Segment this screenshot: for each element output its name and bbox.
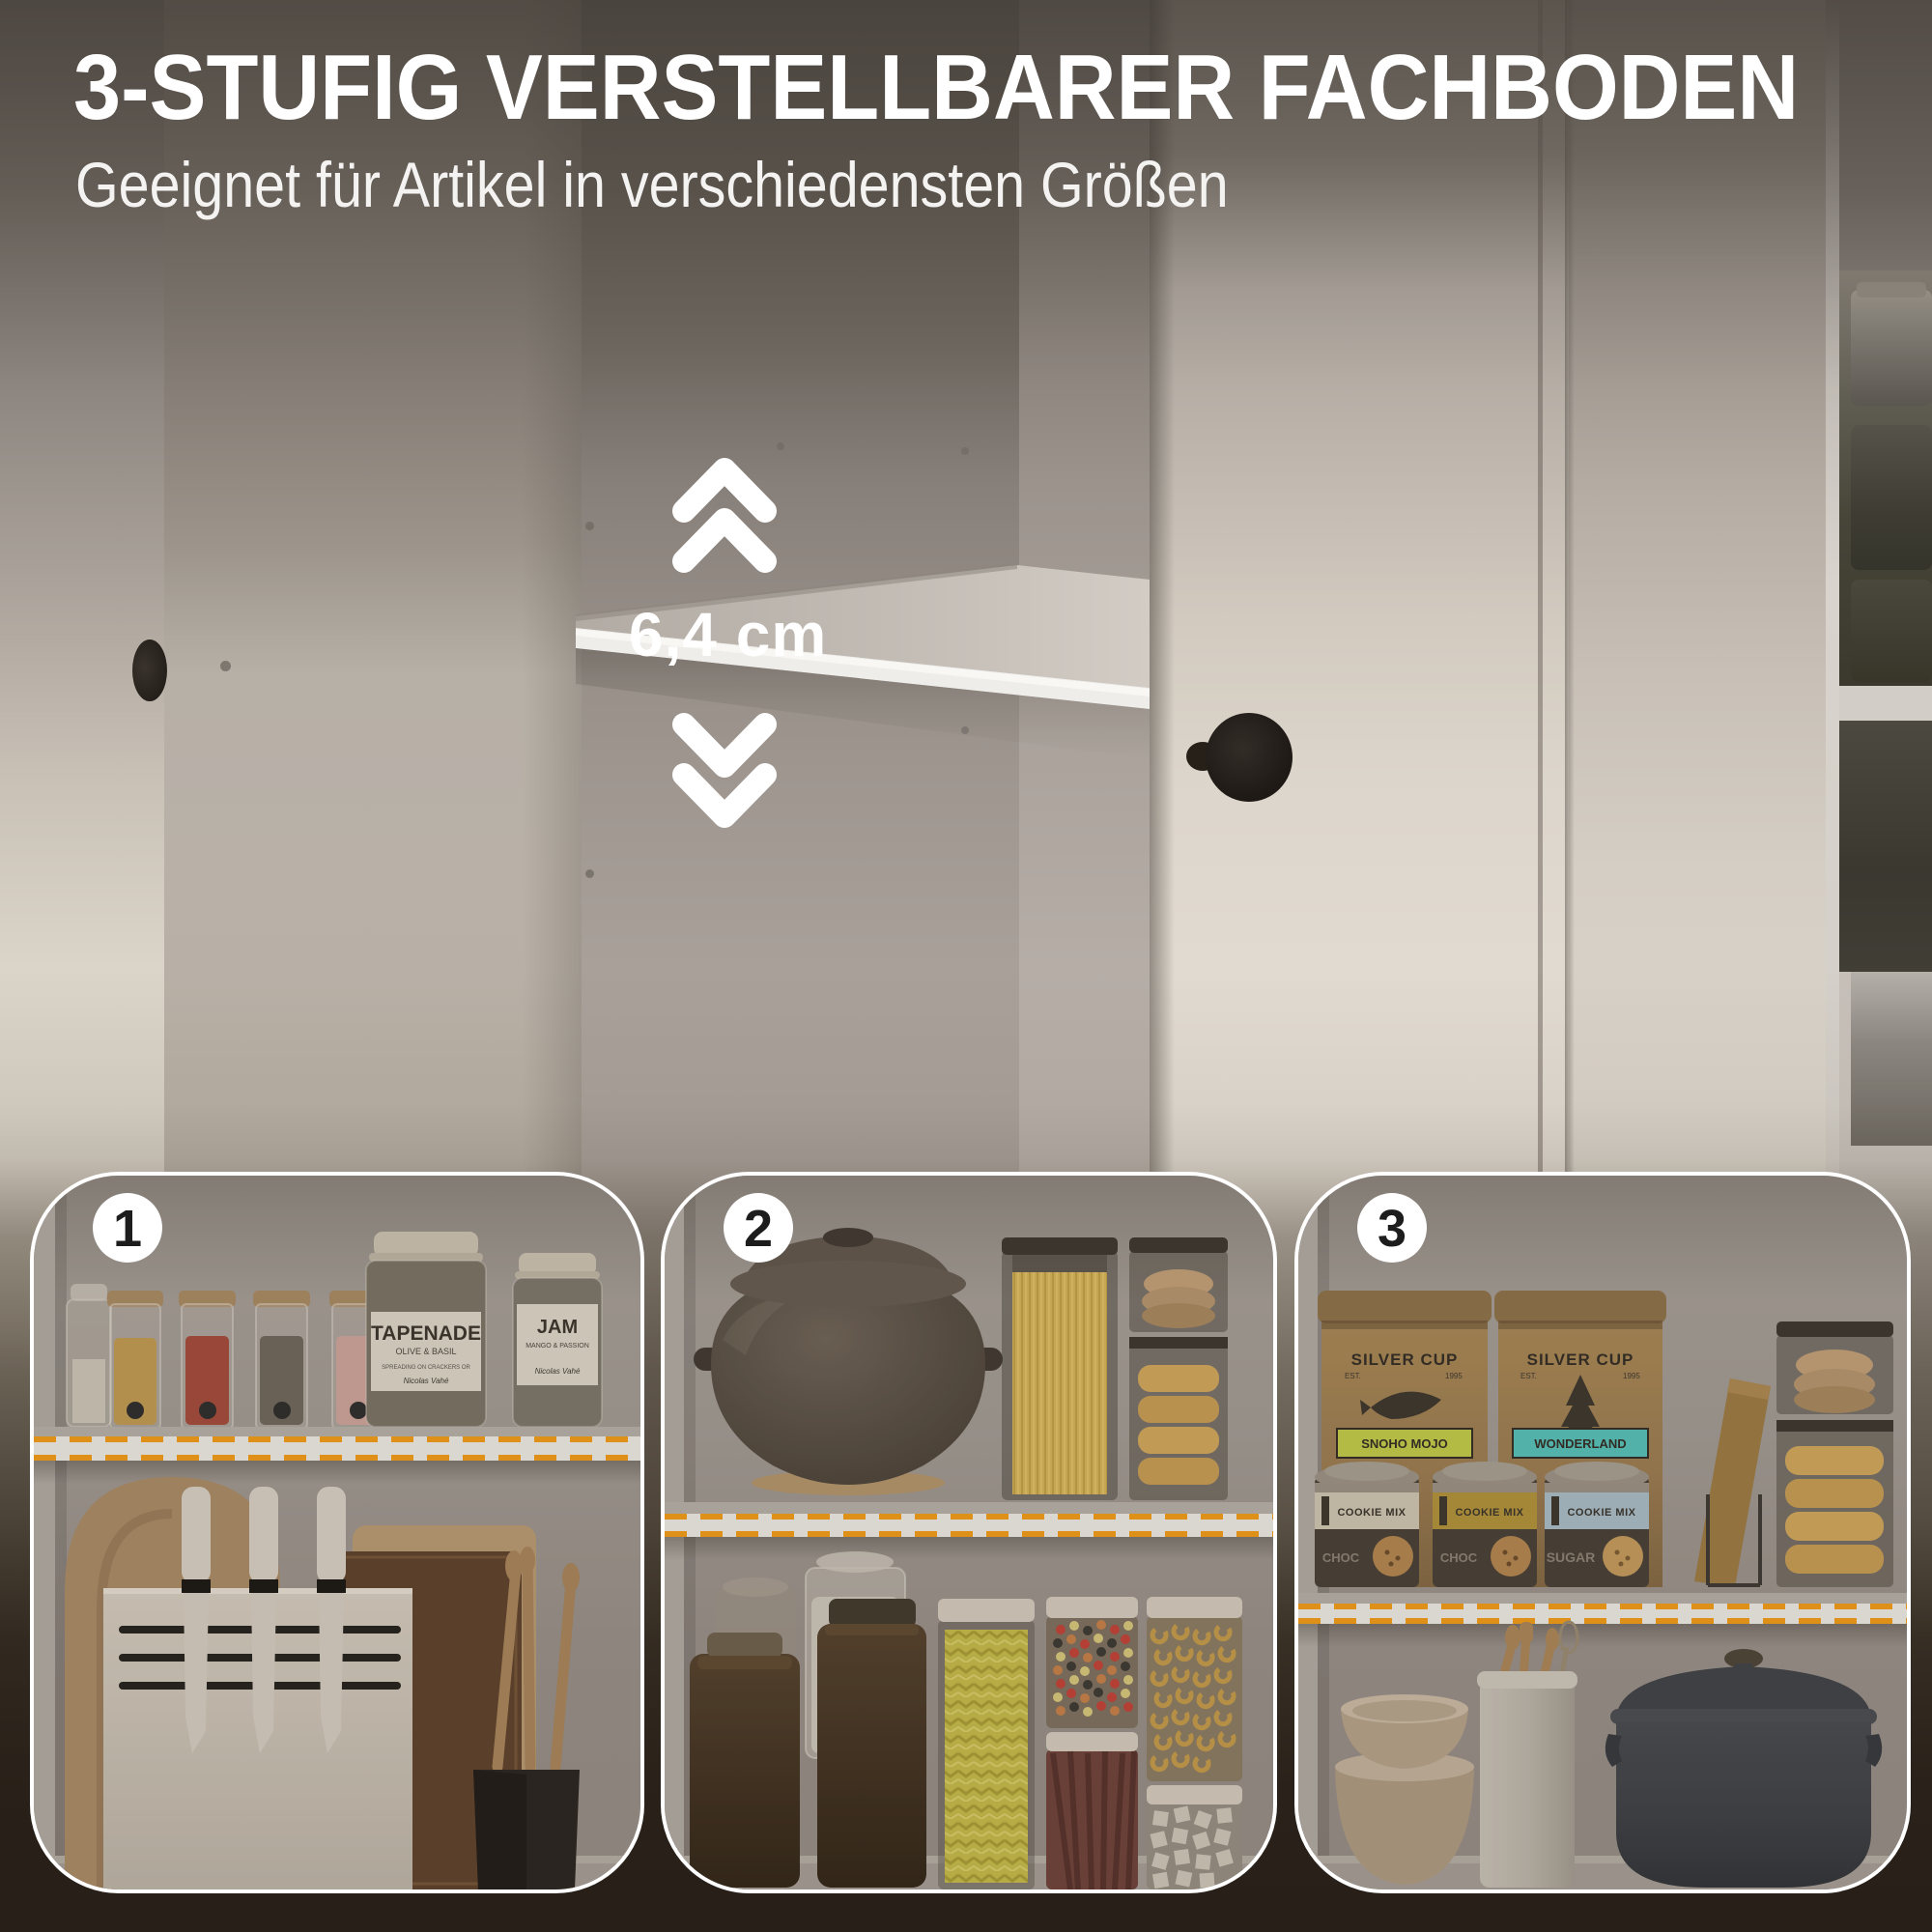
svg-text:1: 1	[113, 1200, 142, 1258]
svg-text:3: 3	[1378, 1200, 1406, 1258]
svg-text:2: 2	[744, 1200, 773, 1258]
